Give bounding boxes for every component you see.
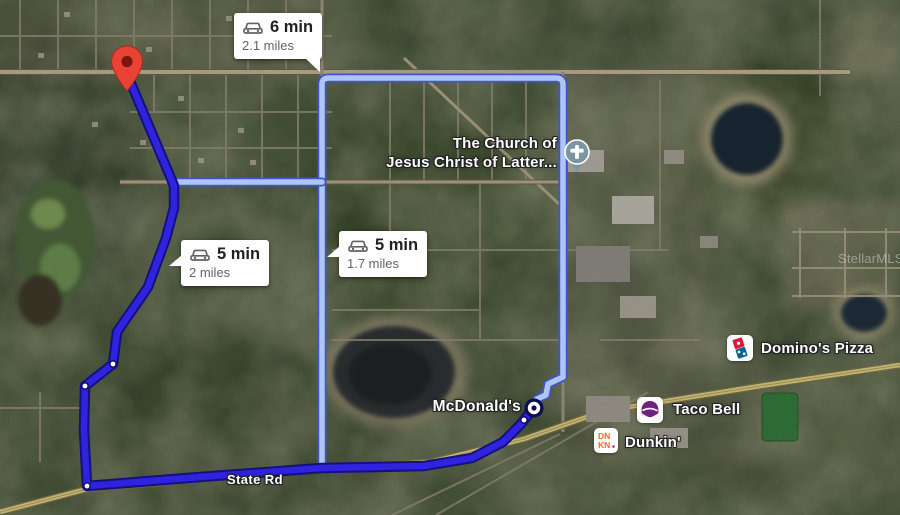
bubble-distance: 2 miles [189,265,260,280]
mcdonalds-poi-label[interactable]: McDonald's [433,397,521,416]
car-icon [189,247,211,262]
church-label-line1: The Church of [386,134,557,153]
church-pin-icon[interactable] [562,139,592,175]
dunkin-poi-label[interactable]: Dunkin' [625,433,681,452]
origin-pin-icon[interactable] [110,45,144,92]
state-rd-road-label: State Rd [227,470,283,489]
bubble-duration: 5 min [375,236,418,255]
car-icon [242,20,264,35]
dominos-logo-icon[interactable] [727,335,753,361]
church-label-line2: Jesus Christ of Latter... [386,153,557,172]
taco-bell-poi-label[interactable]: Taco Bell [673,400,740,419]
route-bubble-5min-1-7mi[interactable]: 5 min 1.7 miles [339,231,427,277]
destination-marker-icon[interactable] [525,399,544,418]
bubble-duration: 5 min [217,245,260,264]
svg-text:KN: KN [598,440,610,450]
route-bubble-5min-2mi[interactable]: 5 min 2 miles [181,240,269,286]
church-poi-label[interactable]: The Church of Jesus Christ of Latter... [386,134,557,172]
stellar-mls-watermark: StellarMLS [838,249,900,268]
taco-bell-logo-icon[interactable] [637,397,663,423]
bubble-tail [305,58,320,72]
dunkin-logo-icon[interactable]: DN KN [594,428,618,453]
bubble-tail [169,255,182,266]
bubble-distance: 2.1 miles [242,38,313,53]
route-bubble-6min[interactable]: 6 min 2.1 miles [234,13,322,59]
dominos-poi-label[interactable]: Domino's Pizza [761,339,873,358]
bubble-duration: 6 min [270,18,313,37]
bubble-distance: 1.7 miles [347,256,418,271]
map-viewport[interactable]: DN KN The Church of Jesus Christ of Latt… [0,0,900,515]
car-icon [347,238,369,253]
bubble-tail [327,246,340,257]
